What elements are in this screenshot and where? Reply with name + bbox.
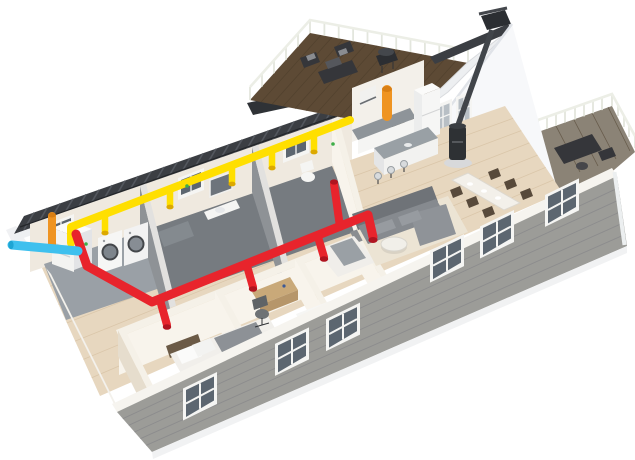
bathroom-sink (215, 207, 225, 213)
status-led (84, 242, 88, 246)
table-setting (467, 182, 473, 186)
coffee-table (381, 237, 407, 251)
house-cutaway-illustration (0, 0, 635, 460)
table-setting (481, 189, 487, 193)
porch-table (576, 162, 588, 170)
table-setting (495, 196, 501, 200)
office-chair (255, 309, 269, 319)
status-led (331, 142, 335, 146)
intake-duct-cap (48, 213, 56, 218)
toilet (301, 172, 315, 182)
extract-duct-drop (368, 215, 373, 237)
exhaust-duct (12, 245, 78, 251)
desk-item (282, 284, 285, 287)
kitchen-vent-cap (382, 86, 392, 92)
island-sink (404, 143, 412, 147)
status-led (185, 184, 189, 188)
floorplan-render (0, 0, 635, 460)
wood-stove (449, 123, 466, 160)
exhaust-duct-cap (8, 241, 13, 249)
